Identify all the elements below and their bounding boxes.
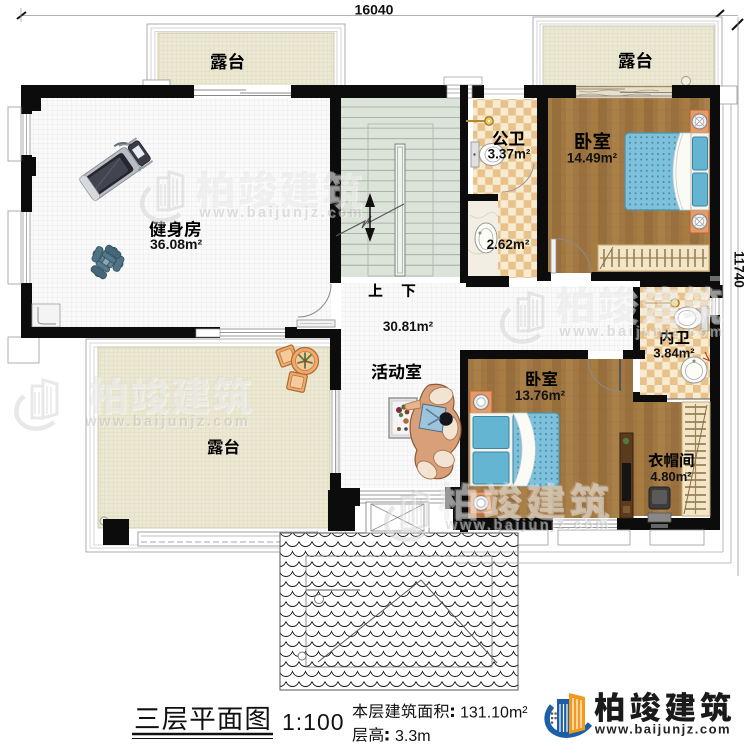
svg-text:36.08m²: 36.08m² — [150, 236, 202, 252]
svg-text:3.37m²: 3.37m² — [488, 147, 531, 162]
svg-text:www.baijunjz.com: www.baijunjz.com — [198, 205, 364, 221]
svg-text:www.baijunjz.com: www.baijunjz.com — [84, 414, 250, 430]
svg-text:11740: 11740 — [732, 251, 747, 288]
svg-text:www.baijunjz.com: www.baijunjz.com — [594, 722, 731, 737]
svg-text:13.76m²: 13.76m² — [515, 388, 566, 403]
svg-text:www.baijunjz.com: www.baijunjz.com — [558, 324, 724, 340]
svg-text:30.81m²: 30.81m² — [383, 319, 434, 334]
svg-text:2.62m²: 2.62m² — [487, 237, 530, 252]
svg-text:www.baijunjz.com: www.baijunjz.com — [444, 517, 610, 533]
svg-text:16040: 16040 — [355, 2, 394, 18]
svg-text:4.80m²: 4.80m² — [650, 469, 692, 484]
svg-text:1:100: 1:100 — [282, 709, 345, 735]
svg-text:3.3m: 3.3m — [395, 728, 431, 745]
svg-text:131.10m²: 131.10m² — [460, 705, 528, 722]
svg-text:14.49m²: 14.49m² — [567, 151, 618, 166]
